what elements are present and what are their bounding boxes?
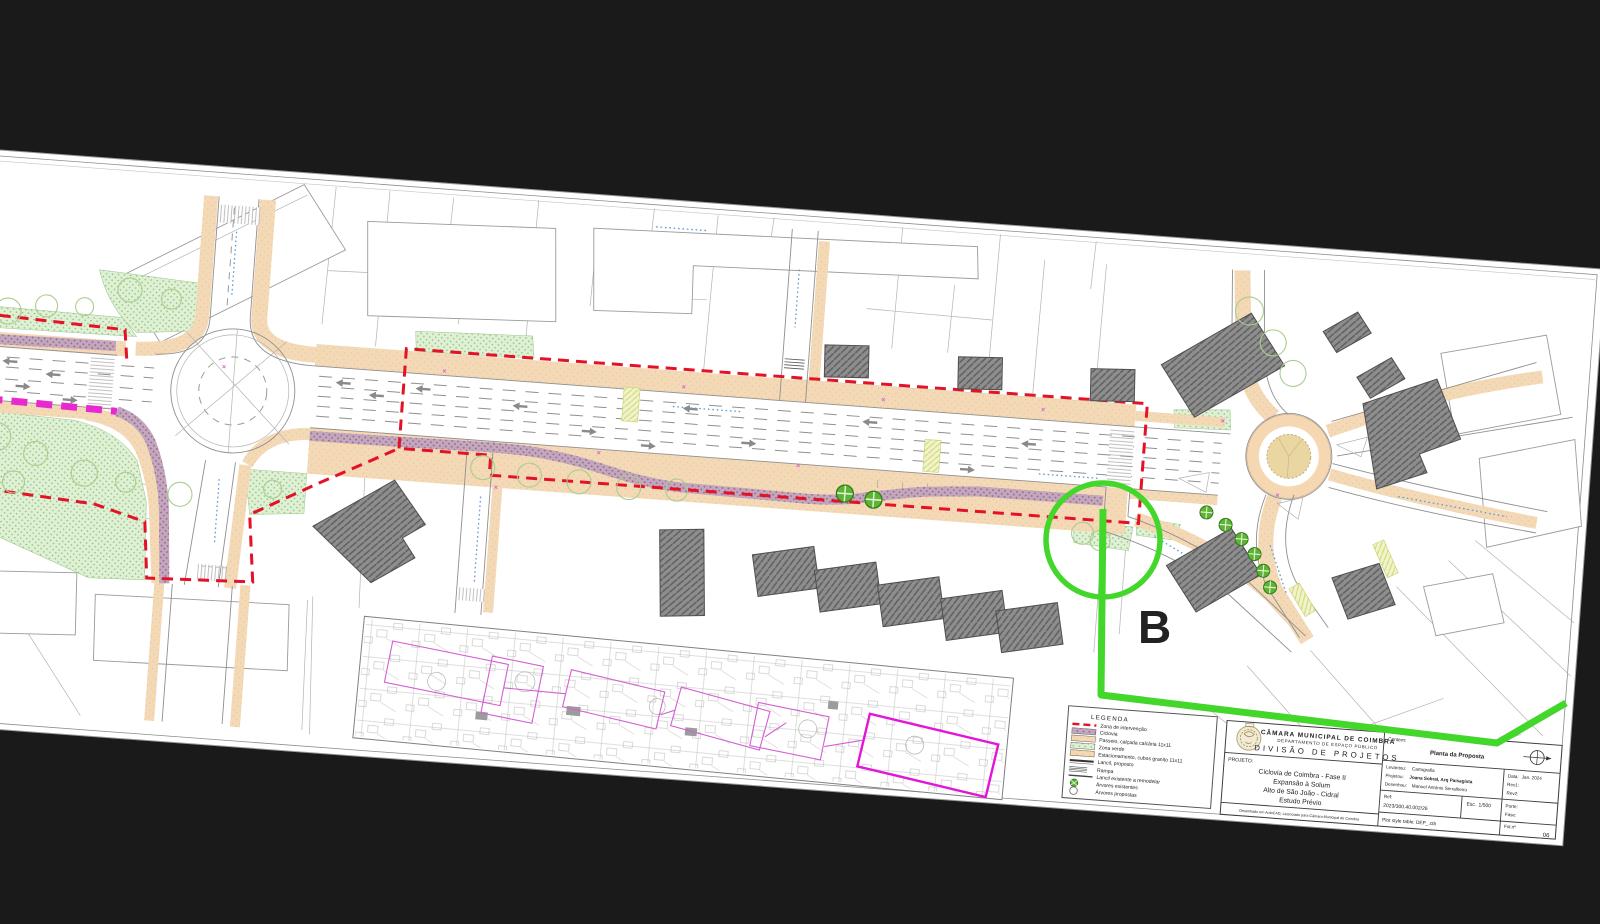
rev2-label: Rev2: (1506, 790, 1518, 796)
marker-label-B: B (1138, 601, 1171, 653)
rev1-label: Rev1: (1507, 782, 1519, 788)
ref-label: Ref: (1384, 794, 1393, 800)
folio-value: 06 (1543, 833, 1551, 840)
crosswalk-west-avenue (87, 355, 115, 409)
crosswalk-side-street (458, 587, 485, 602)
fase-label: Fase: (1505, 812, 1517, 818)
crosswalk-avenue-east (1106, 429, 1134, 489)
esc-label: Esc. (1466, 801, 1476, 808)
legend: LEGENDA Zona de intervenção Ciclovia Pas… (1062, 706, 1217, 809)
porte-label: Porte: (1505, 803, 1518, 809)
plan-canvas: LEGENDA Zona de intervenção Ciclovia Pas… (0, 0, 1600, 924)
legend-label-6: Rampa (1097, 768, 1114, 775)
data-label: Data: (1508, 773, 1519, 779)
esc-value: 1/500 (1478, 802, 1491, 809)
screenshot-stage: LEGENDA Zona de intervenção Ciclovia Pas… (0, 0, 1600, 924)
folio-label: Fol.nº (1504, 824, 1517, 830)
crosswalk-north-street (217, 204, 260, 225)
